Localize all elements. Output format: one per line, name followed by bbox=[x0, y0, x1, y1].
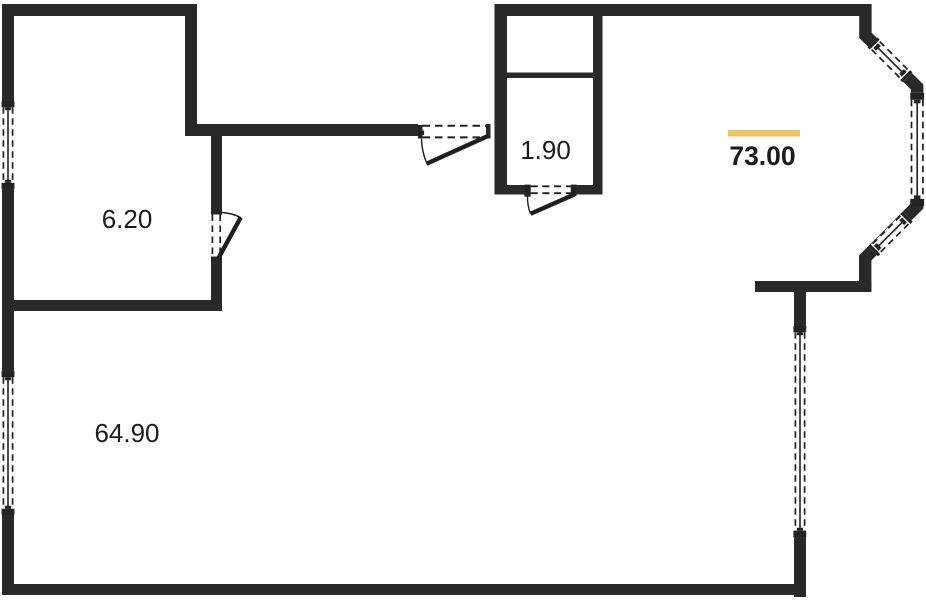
svg-text:73.00: 73.00 bbox=[729, 141, 795, 171]
svg-text:64.90: 64.90 bbox=[94, 418, 159, 448]
svg-text:1.90: 1.90 bbox=[520, 135, 571, 165]
svg-text:6.20: 6.20 bbox=[102, 204, 153, 234]
